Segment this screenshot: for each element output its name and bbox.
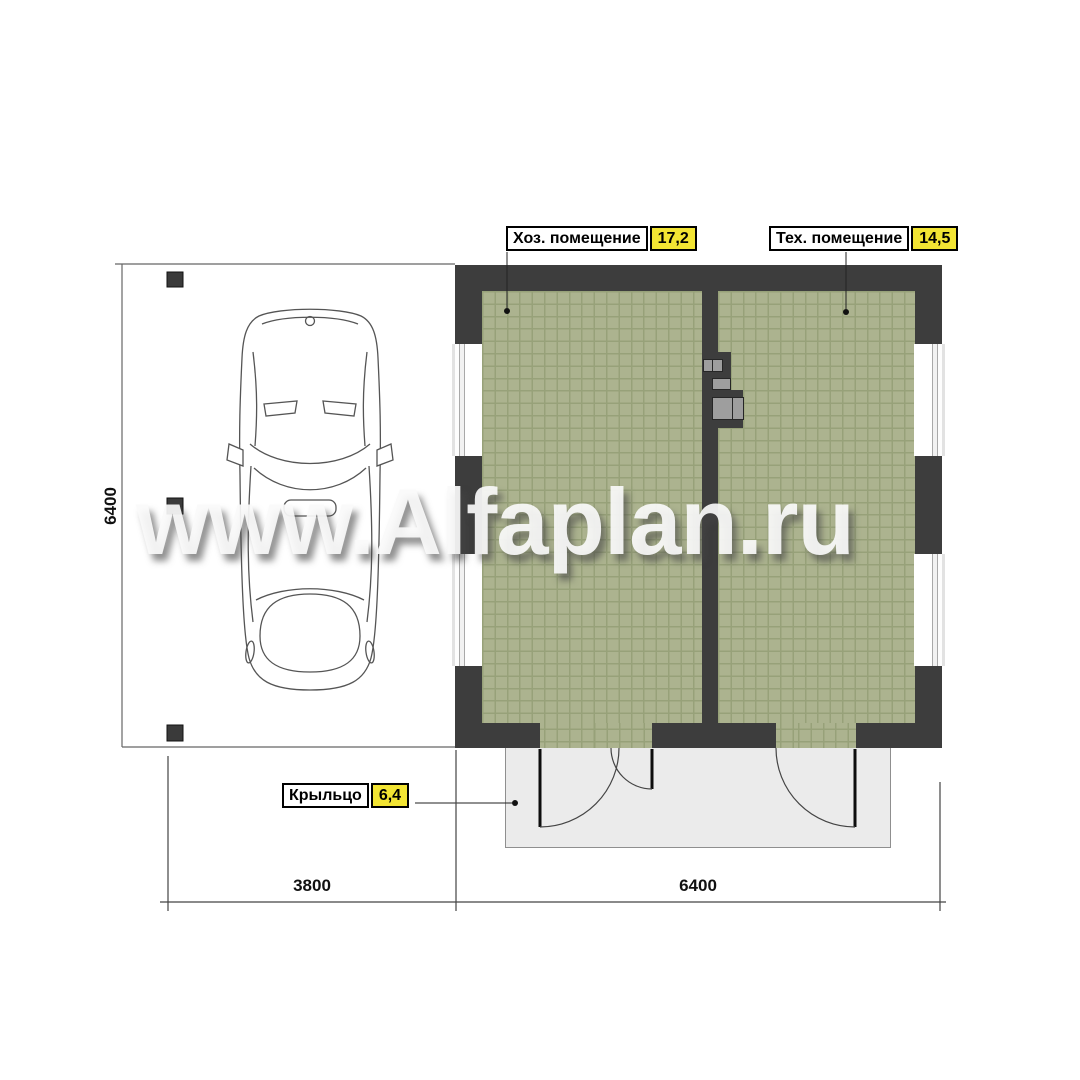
car-mirror-right xyxy=(377,444,393,466)
car-windshield-base xyxy=(250,444,370,464)
room-label-hoz-area-badge: 17,2 xyxy=(650,226,697,251)
car-rear-light-right xyxy=(365,641,376,664)
chimney-flue-small xyxy=(712,378,731,390)
room-label-teh-area-badge: 14,5 xyxy=(911,226,958,251)
car-emblem xyxy=(306,317,315,326)
car-front-bumper-line xyxy=(262,317,358,324)
chimney-flue-large xyxy=(712,397,744,420)
watermark-text: www.Alfaplan.ru xyxy=(136,468,854,576)
floor-plan-canvas: Хоз. помещение 17,2 Тех. помещение 14,5 … xyxy=(0,0,1080,1080)
porch-label-area-badge: 6,4 xyxy=(371,783,409,808)
dimension-carport-depth: 6400 xyxy=(101,456,121,556)
room-label-hoz-text: Хоз. помещение xyxy=(506,226,648,251)
dimension-building-width: 6400 xyxy=(648,876,748,896)
car-hood-vents xyxy=(264,401,356,416)
window-left-upper xyxy=(452,344,482,456)
window-right-lower xyxy=(914,554,945,666)
door-threshold-left xyxy=(540,723,652,748)
window-right-upper xyxy=(914,344,945,456)
chimney-flue-pair xyxy=(703,359,723,372)
porch-label: Крыльцо 6,4 xyxy=(282,783,409,808)
car-rear-window-top xyxy=(256,589,364,600)
car-hood-creases xyxy=(253,352,367,446)
porch-label-text: Крыльцо xyxy=(282,783,369,808)
room-label-hoz: Хоз. помещение 17,2 xyxy=(506,226,697,251)
car-rear-window-oval xyxy=(260,594,360,672)
porch-area xyxy=(505,748,891,848)
room-label-teh: Тех. помещение 14,5 xyxy=(769,226,958,251)
room-label-teh-text: Тех. помещение xyxy=(769,226,909,251)
door-threshold-right xyxy=(776,723,856,748)
car-mirror-left xyxy=(227,444,243,466)
dimension-carport-width: 3800 xyxy=(262,876,362,896)
car-rear-light-left xyxy=(245,641,256,664)
